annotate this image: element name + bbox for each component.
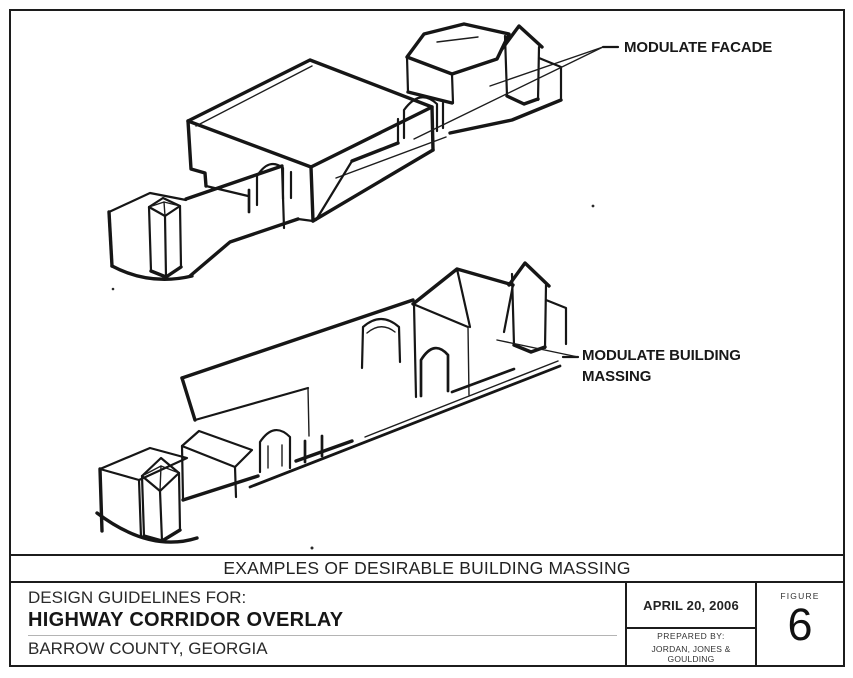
document-page: MODULATE FACADE MODULATE BUILDING MASSIN… xyxy=(0,0,853,678)
building-massing-sketches xyxy=(11,11,843,554)
prepared-by-cell: PREPARED BY: JORDAN, JONES & GOULDING xyxy=(627,627,755,665)
title-block-date-column: APRIL 20, 2006 PREPARED BY: JORDAN, JONE… xyxy=(625,583,755,665)
caption-text: EXAMPLES OF DESIRABLE BUILDING MASSING xyxy=(223,558,630,578)
facade-leader-lines xyxy=(414,47,618,139)
figure-cell: FIGURE 6 xyxy=(755,583,843,665)
prepared-by-label: PREPARED BY: xyxy=(657,631,725,641)
label-modulate-building-massing: MODULATE BUILDING MASSING xyxy=(582,345,774,387)
title-block-main: DESIGN GUIDELINES FOR: HIGHWAY CORRIDOR … xyxy=(11,583,625,665)
prepared-by-value: JORDAN, JONES & GOULDING xyxy=(627,644,755,664)
title-block: DESIGN GUIDELINES FOR: HIGHWAY CORRIDOR … xyxy=(11,583,843,665)
label-modulate-facade: MODULATE FACADE xyxy=(624,37,772,58)
caption-bar: EXAMPLES OF DESIRABLE BUILDING MASSING xyxy=(11,554,843,583)
doc-title: HIGHWAY CORRIDOR OVERLAY xyxy=(28,608,625,633)
date-cell: APRIL 20, 2006 xyxy=(627,583,755,627)
doc-subtitle: DESIGN GUIDELINES FOR: xyxy=(28,587,625,608)
doc-location: BARROW COUNTY, GEORGIA xyxy=(28,638,625,659)
drawing-area: MODULATE FACADE MODULATE BUILDING MASSIN… xyxy=(11,11,843,554)
bottom-sketch xyxy=(97,263,566,542)
title-divider-rule xyxy=(28,635,617,636)
sheet-frame: MODULATE FACADE MODULATE BUILDING MASSIN… xyxy=(9,9,845,667)
top-sketch xyxy=(109,24,561,279)
figure-number: 6 xyxy=(757,601,843,649)
